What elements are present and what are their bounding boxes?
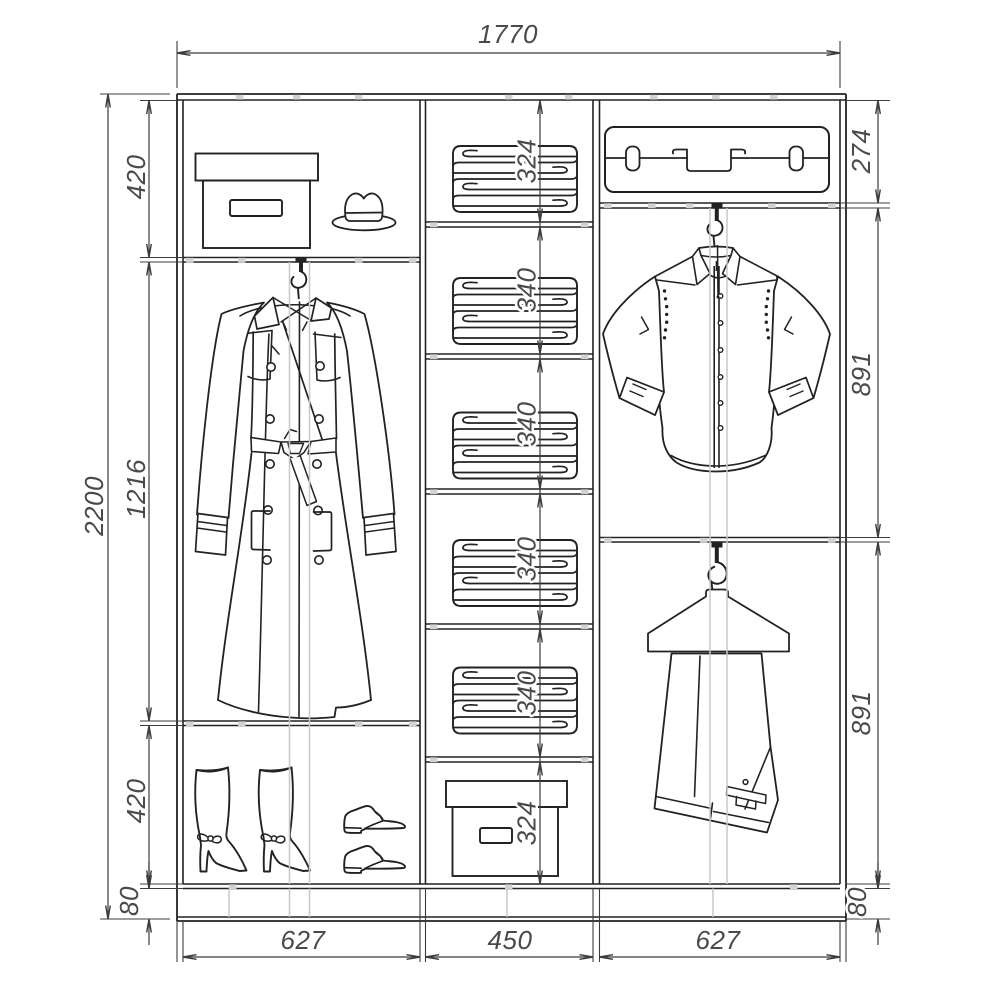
svg-text:420: 420 (121, 779, 151, 824)
svg-text:1770: 1770 (478, 19, 538, 49)
svg-text:1216: 1216 (121, 459, 151, 519)
svg-text:80: 80 (842, 887, 872, 917)
svg-text:627: 627 (281, 925, 327, 955)
svg-text:274: 274 (846, 129, 876, 175)
svg-text:627: 627 (696, 925, 742, 955)
svg-text:324: 324 (512, 139, 542, 184)
svg-text:340: 340 (512, 671, 542, 716)
svg-text:80: 80 (114, 886, 144, 916)
svg-text:891: 891 (846, 691, 876, 736)
svg-text:340: 340 (512, 268, 542, 313)
svg-text:450: 450 (488, 925, 533, 955)
svg-text:420: 420 (121, 155, 151, 200)
svg-text:340: 340 (512, 537, 542, 582)
svg-text:324: 324 (512, 801, 542, 846)
svg-text:2200: 2200 (79, 476, 109, 537)
svg-text:340: 340 (512, 402, 542, 447)
svg-text:891: 891 (846, 352, 876, 397)
